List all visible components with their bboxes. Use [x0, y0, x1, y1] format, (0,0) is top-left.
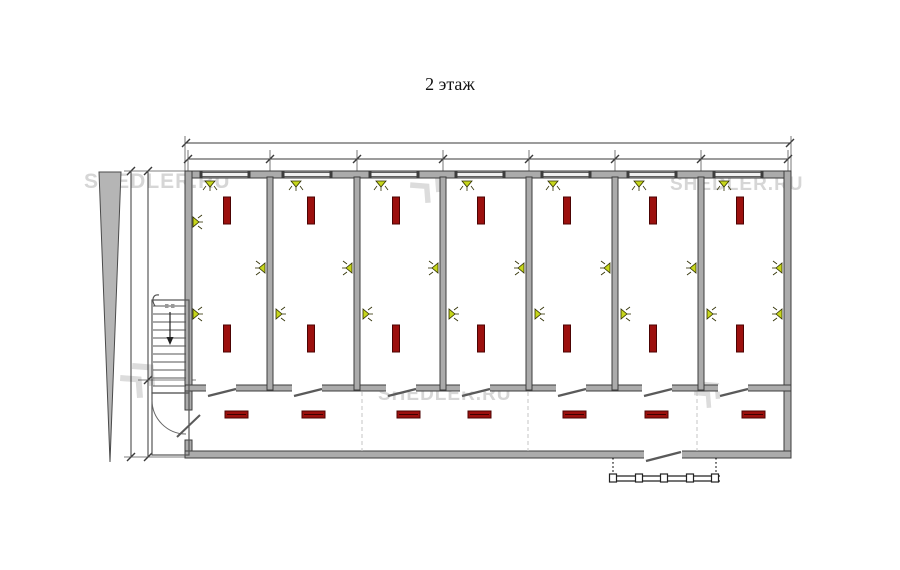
window [457, 173, 503, 177]
light-ray [471, 186, 474, 190]
window [629, 173, 675, 177]
light-ray [460, 186, 463, 190]
ramp-wedge [99, 172, 121, 462]
window-jamb [417, 172, 420, 179]
light-ray [515, 261, 519, 264]
wall-divider [267, 177, 273, 390]
radiator [564, 325, 571, 352]
wall-light-icon [462, 181, 472, 187]
window-jamb [627, 172, 630, 179]
light-ray [717, 186, 720, 190]
wall-light-icon [604, 263, 610, 273]
light-ray [198, 318, 202, 321]
light-ray [626, 318, 630, 321]
light-ray [626, 307, 630, 310]
light-ray [643, 186, 646, 190]
wall-light-icon [276, 309, 282, 319]
light-ray [515, 272, 519, 275]
window-jamb [200, 172, 203, 179]
vestibule [152, 393, 189, 455]
wall-light-icon [707, 309, 713, 319]
light-ray [773, 318, 777, 321]
wall-divider [612, 177, 618, 390]
window-jamb [455, 172, 458, 179]
window-jamb [589, 172, 592, 179]
light-ray [540, 307, 544, 310]
light-ray [429, 261, 433, 264]
light-ray [214, 186, 217, 190]
light-ray [203, 186, 206, 190]
window-jamb [369, 172, 372, 179]
light-ray [546, 186, 549, 190]
door-swing-arc [152, 400, 186, 434]
light-ray [687, 261, 691, 264]
wall-light-icon [449, 309, 455, 319]
wall-light-icon [291, 181, 301, 187]
light-ray [454, 307, 458, 310]
radiator [737, 325, 744, 352]
wall-divider [440, 177, 446, 390]
light-ray [374, 186, 377, 190]
light-ray [773, 261, 777, 264]
floorplan-page: 2 этаж SHEDLER.RUSHEDLER.RUSHEDLER.RU [0, 0, 900, 570]
porch-post [661, 474, 668, 482]
radiator [650, 197, 657, 224]
wall-right [784, 171, 791, 458]
porch-post [687, 474, 694, 482]
window [284, 173, 330, 177]
light-ray [601, 261, 605, 264]
light-ray [300, 186, 303, 190]
radiator [308, 325, 315, 352]
light-ray [557, 186, 560, 190]
wall-light-icon [432, 263, 438, 273]
stair-mark [165, 304, 169, 308]
window-jamb [503, 172, 506, 179]
light-ray [712, 307, 716, 310]
radiator [737, 197, 744, 224]
radiator [478, 197, 485, 224]
wall-light-icon [621, 309, 627, 319]
light-ray [540, 318, 544, 321]
radiator [393, 197, 400, 224]
light-ray [198, 307, 202, 310]
window-jamb [248, 172, 251, 179]
wall-light-icon [259, 263, 265, 273]
window [715, 173, 761, 177]
wall-light-icon [776, 263, 782, 273]
radiator [224, 197, 231, 224]
wall-light-icon [193, 309, 199, 319]
light-ray [687, 272, 691, 275]
wall-light-icon [346, 263, 352, 273]
radiator [393, 325, 400, 352]
radiator [224, 325, 231, 352]
window-jamb [675, 172, 678, 179]
floor-title: 2 этаж [0, 74, 900, 95]
wall-light-icon [548, 181, 558, 187]
light-ray [773, 307, 777, 310]
wall-light-icon [363, 309, 369, 319]
porch-post [712, 474, 719, 482]
light-ray [343, 272, 347, 275]
wall-light-icon [634, 181, 644, 187]
window-jamb [282, 172, 285, 179]
light-ray [601, 272, 605, 275]
porch-post [636, 474, 643, 482]
wall-light-icon [719, 181, 729, 187]
stair-mark [171, 304, 175, 308]
light-ray [343, 261, 347, 264]
window-jamb [761, 172, 764, 179]
wall-light-icon [776, 309, 782, 319]
light-ray [429, 272, 433, 275]
porch-post [610, 474, 617, 482]
window [202, 173, 248, 177]
light-ray [368, 318, 372, 321]
wall-divider [526, 177, 532, 390]
light-ray [256, 261, 260, 264]
light-ray [632, 186, 635, 190]
wall-light-icon [535, 309, 541, 319]
light-ray [281, 307, 285, 310]
radiator [308, 197, 315, 224]
wall-divider [354, 177, 360, 390]
wall-light-icon [690, 263, 696, 273]
light-ray [454, 318, 458, 321]
light-ray [368, 307, 372, 310]
wall-light-icon [376, 181, 386, 187]
light-ray [712, 318, 716, 321]
light-ray [728, 186, 731, 190]
stair-arrow-head [167, 337, 174, 345]
wall-light-icon [205, 181, 215, 187]
wall-light-icon [518, 263, 524, 273]
window-jamb [330, 172, 333, 179]
window-jamb [541, 172, 544, 179]
window-jamb [713, 172, 716, 179]
window [371, 173, 417, 177]
light-ray [289, 186, 292, 190]
radiator [650, 325, 657, 352]
light-ray [773, 272, 777, 275]
wall-bottom [185, 451, 791, 458]
light-ray [198, 226, 202, 229]
light-ray [256, 272, 260, 275]
radiator [564, 197, 571, 224]
light-ray [198, 215, 202, 218]
radiator [478, 325, 485, 352]
light-ray [281, 318, 285, 321]
wall-light-icon [193, 217, 199, 227]
light-ray [385, 186, 388, 190]
wall-divider [698, 177, 704, 390]
window [543, 173, 589, 177]
